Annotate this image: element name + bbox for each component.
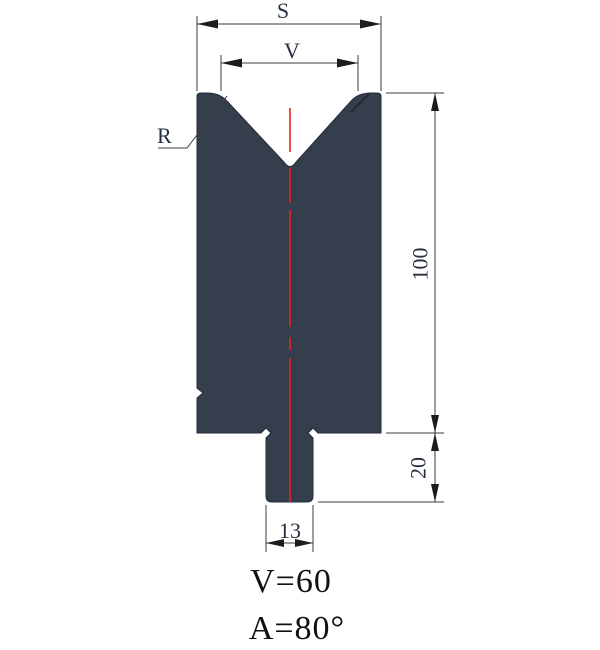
dimension-20: 20 bbox=[318, 433, 444, 502]
w13-label: 13 bbox=[279, 518, 301, 543]
h100-arrow-bottom bbox=[431, 415, 439, 433]
dimension-100: 100 bbox=[386, 93, 444, 433]
s-arrow-left bbox=[197, 20, 218, 29]
s-label: S bbox=[277, 0, 289, 23]
note-a-equation: A=80° bbox=[249, 610, 345, 647]
v-arrow-left bbox=[221, 59, 242, 68]
h20-arrow-top bbox=[431, 433, 439, 451]
die-body bbox=[197, 93, 381, 502]
s-arrow-right bbox=[360, 20, 381, 29]
note-v-equation: V=60 bbox=[250, 563, 332, 600]
dimension-v: V bbox=[221, 38, 358, 91]
v-arrow-right bbox=[337, 59, 358, 68]
r-label: R bbox=[157, 123, 172, 148]
v-label: V bbox=[284, 38, 300, 63]
h100-arrow-top bbox=[431, 93, 439, 111]
die-cross-section-drawing: S V R 100 bbox=[0, 0, 600, 650]
h20-label: 20 bbox=[406, 457, 431, 479]
die-shape bbox=[197, 93, 381, 502]
dimension-13: 13 bbox=[266, 505, 313, 552]
annotation-notes: V=60 A=80° bbox=[249, 563, 345, 647]
h100-label: 100 bbox=[408, 248, 433, 281]
h20-arrow-bottom bbox=[431, 484, 439, 502]
technical-drawing-canvas: S V R 100 bbox=[0, 0, 600, 650]
